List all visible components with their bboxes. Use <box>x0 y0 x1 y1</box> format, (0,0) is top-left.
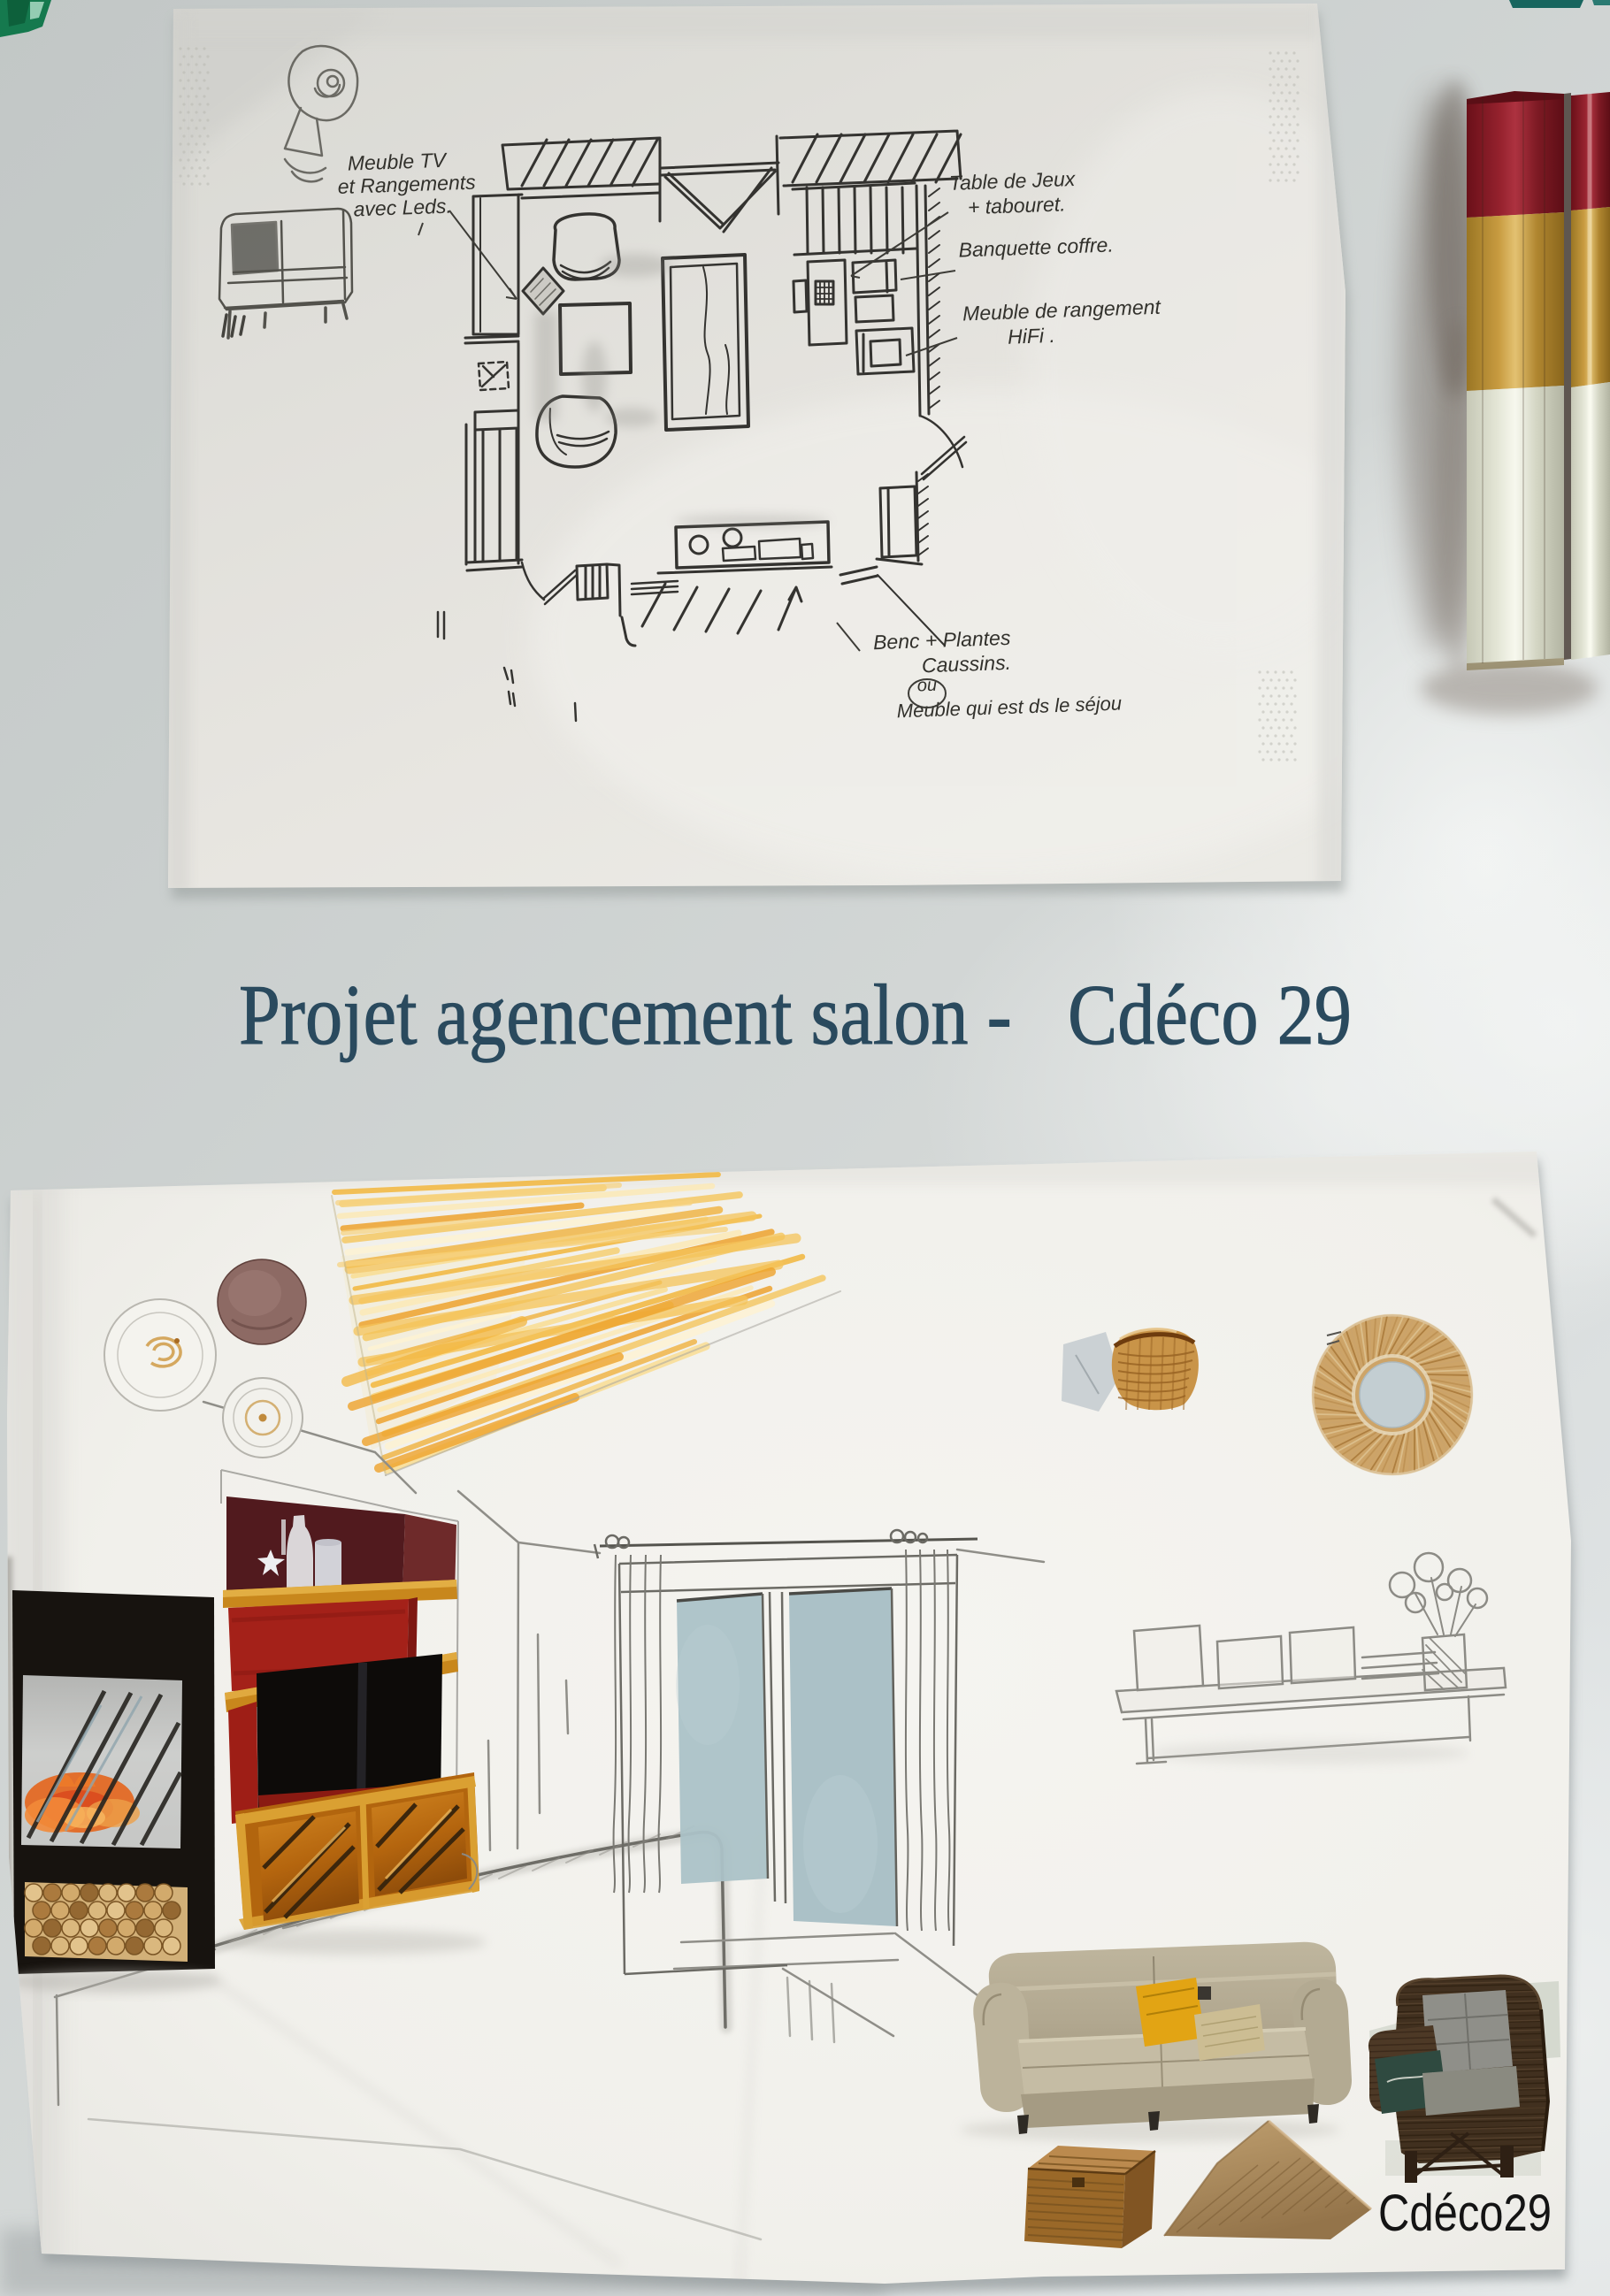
svg-text:Cdéco29: Cdéco29 <box>1378 2185 1552 2242</box>
svg-text:Caussins.: Caussins. <box>922 651 1012 677</box>
svg-text:+ tabouret.: + tabouret. <box>967 192 1065 218</box>
svg-text:Projet agencement salon - Cd: Projet agencement salon - Cdéco 29 <box>239 968 1352 1062</box>
svg-text:Benc + Plantes: Benc + Plantes <box>873 626 1012 654</box>
svg-text:avec Leds.: avec Leds. <box>353 195 452 221</box>
svg-text:Table de Jeux: Table de Jeux <box>949 167 1077 195</box>
svg-text:HiFi .: HiFi . <box>1008 324 1056 348</box>
svg-text:Meuble TV: Meuble TV <box>347 149 448 175</box>
svg-text:et Rangements: et Rangements <box>337 171 476 198</box>
